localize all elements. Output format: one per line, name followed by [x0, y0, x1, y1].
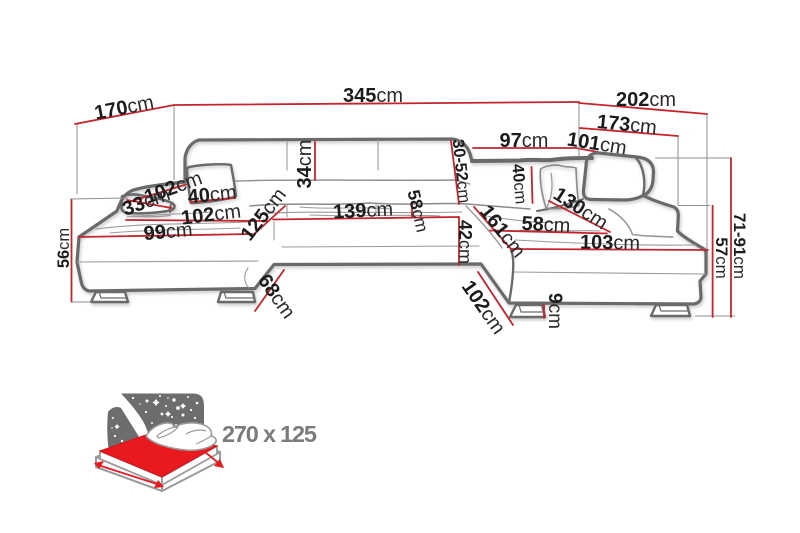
- svg-text:9cm: 9cm: [544, 293, 565, 329]
- svg-text:71-91cm: 71-91cm: [730, 213, 749, 279]
- svg-text:345cm: 345cm: [343, 85, 403, 107]
- svg-text:103cm: 103cm: [580, 231, 640, 254]
- svg-text:56cm: 56cm: [55, 228, 73, 268]
- svg-text:270 x 125: 270 x 125: [222, 421, 317, 447]
- svg-text:58cm: 58cm: [521, 213, 571, 238]
- svg-text:99cm: 99cm: [143, 219, 194, 245]
- svg-text:202cm: 202cm: [616, 89, 676, 111]
- svg-text:34cm: 34cm: [294, 140, 316, 189]
- svg-text:139cm: 139cm: [332, 198, 393, 223]
- svg-text:42cm: 42cm: [455, 220, 475, 264]
- svg-text:40cm: 40cm: [508, 163, 529, 205]
- svg-text:57cm: 57cm: [712, 237, 731, 279]
- svg-text:97cm: 97cm: [500, 130, 549, 152]
